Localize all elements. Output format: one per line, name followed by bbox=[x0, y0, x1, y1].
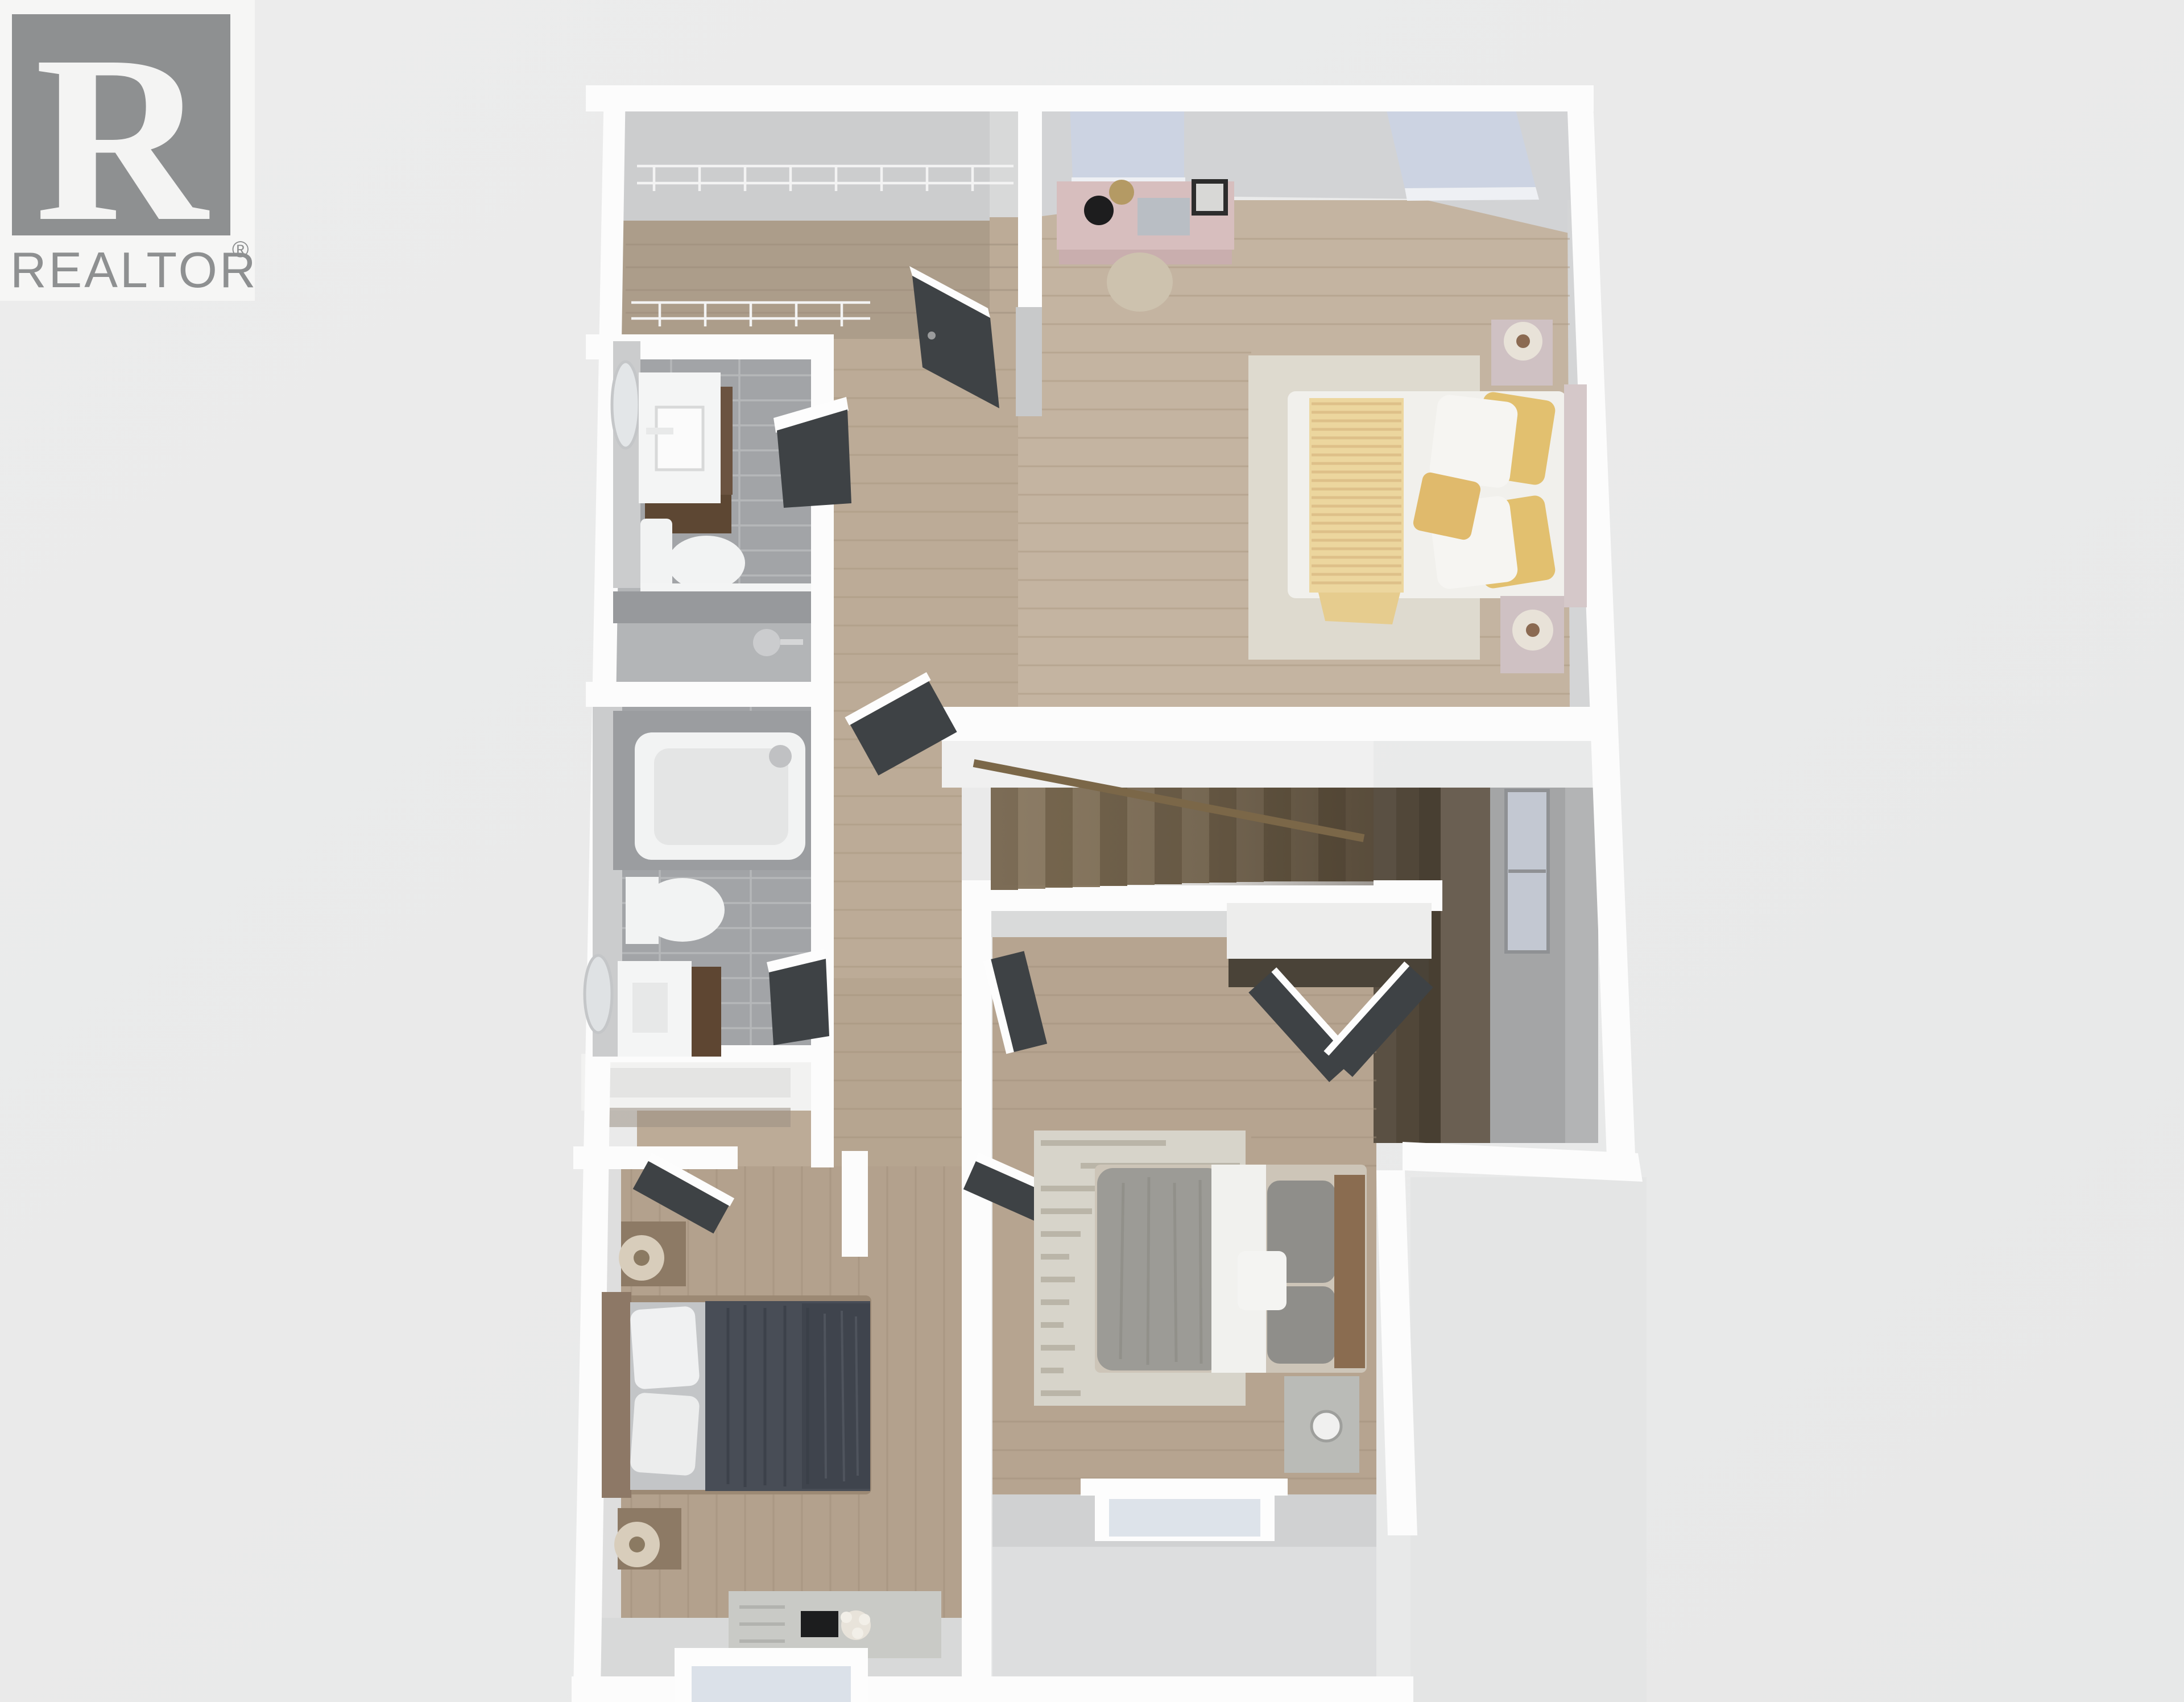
svg-text:®: ® bbox=[232, 237, 249, 262]
svg-text:REALTOR: REALTOR bbox=[10, 242, 258, 298]
svg-text:R: R bbox=[35, 6, 210, 271]
